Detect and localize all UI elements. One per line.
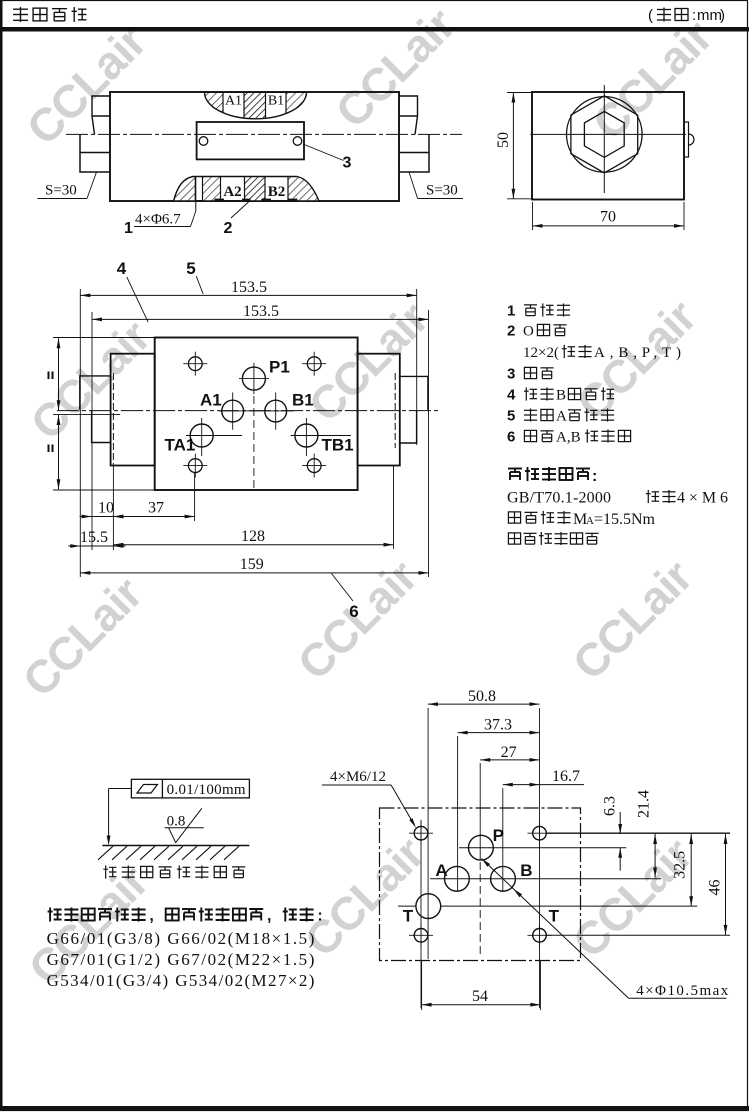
svg-text:,: ,	[149, 908, 153, 925]
svg-text:2: 2	[224, 220, 233, 237]
svg-text:15.5: 15.5	[80, 529, 108, 546]
svg-text:G534/01(G3/4) G534/02(M27×2): G534/01(G3/4) G534/02(M27×2)	[47, 971, 316, 990]
svg-text:46: 46	[707, 880, 724, 896]
svg-text:B1: B1	[268, 94, 284, 109]
svg-text:S=30: S=30	[426, 183, 458, 199]
svg-text:G67/01(G1/2) G67/02(M22×1.5): G67/01(G1/2) G67/02(M22×1.5)	[47, 950, 316, 969]
svg-text:A: A	[586, 515, 594, 527]
svg-text::: :	[692, 7, 696, 24]
svg-text:0.8: 0.8	[167, 814, 186, 830]
svg-text:3: 3	[343, 155, 352, 172]
svg-text:5: 5	[186, 259, 195, 278]
svg-text:G66/01(G3/8) G66/02(M18×1.5): G66/01(G3/8) G66/02(M18×1.5)	[47, 929, 316, 948]
svg-text:0.01/100mm: 0.01/100mm	[167, 782, 246, 798]
svg-text:153.5: 153.5	[231, 279, 267, 296]
svg-text:A2: A2	[223, 184, 241, 200]
svg-text:1: 1	[124, 220, 133, 237]
svg-text:70: 70	[600, 209, 616, 226]
svg-text:A: A	[435, 861, 447, 880]
svg-text:A1: A1	[225, 94, 242, 109]
svg-text:37.3: 37.3	[484, 717, 512, 734]
svg-text:A1: A1	[200, 391, 222, 410]
svg-text:6.3: 6.3	[602, 796, 619, 816]
svg-text:54: 54	[472, 988, 488, 1005]
svg-text::: :	[592, 468, 597, 485]
svg-text:O: O	[523, 324, 534, 340]
svg-text:4×Φ10.5max: 4×Φ10.5max	[636, 983, 729, 999]
svg-text:A,B: A,B	[556, 430, 581, 446]
svg-text:B: B	[556, 388, 566, 404]
svg-text:3: 3	[507, 366, 515, 383]
svg-text:153.5: 153.5	[243, 303, 279, 320]
svg-text:B2: B2	[268, 184, 286, 200]
svg-text:50.8: 50.8	[468, 688, 496, 705]
svg-text::: :	[317, 908, 322, 925]
svg-text:P1: P1	[269, 358, 290, 377]
svg-text:mm: mm	[697, 7, 722, 24]
svg-text:1: 1	[507, 303, 515, 320]
svg-text:4: 4	[507, 387, 516, 404]
svg-text:4×M6/12: 4×M6/12	[330, 769, 386, 785]
svg-text:S=30: S=30	[45, 183, 77, 199]
svg-text:159: 159	[240, 556, 264, 573]
svg-text:A: A	[556, 409, 567, 425]
svg-text:6: 6	[349, 602, 358, 621]
svg-text:P: P	[493, 826, 504, 845]
svg-text:10: 10	[98, 500, 114, 517]
svg-text:): )	[720, 7, 725, 24]
svg-text:4: 4	[117, 259, 127, 278]
svg-text:B1: B1	[292, 391, 314, 410]
svg-text:50: 50	[495, 132, 512, 148]
svg-text:(: (	[648, 7, 653, 24]
svg-text:,: ,	[267, 908, 271, 925]
svg-text:TB1: TB1	[322, 436, 354, 455]
svg-text:B: B	[520, 861, 532, 880]
svg-text:32.5: 32.5	[672, 851, 689, 879]
svg-text:5: 5	[507, 408, 515, 425]
svg-text:16.7: 16.7	[552, 768, 580, 785]
svg-text:T: T	[403, 907, 414, 926]
svg-text:12×2(: 12×2(	[523, 345, 559, 361]
svg-text:T: T	[549, 907, 560, 926]
svg-text:21.4: 21.4	[636, 790, 653, 818]
svg-text:4×M6: 4×M6	[677, 490, 728, 507]
svg-text:4×Φ6.7: 4×Φ6.7	[135, 212, 181, 228]
svg-text:2: 2	[507, 323, 515, 340]
svg-text:=15.5Nm: =15.5Nm	[594, 511, 656, 528]
svg-text:27: 27	[501, 744, 517, 761]
svg-text:GB/T70.1-2000: GB/T70.1-2000	[507, 490, 611, 507]
svg-text:6: 6	[507, 429, 515, 446]
svg-text:37: 37	[148, 500, 164, 517]
svg-text:128: 128	[241, 528, 265, 545]
svg-text:TA1: TA1	[165, 436, 196, 455]
